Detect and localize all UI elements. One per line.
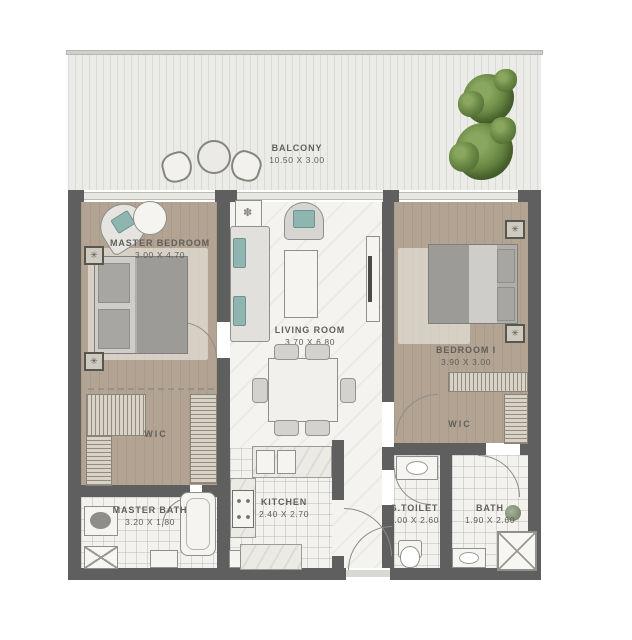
wic-bedroom1-label: WIC [448,418,472,430]
master-bath-label: MASTER BATH 3.20 X 1.80 [113,504,188,528]
guest-toilet-sink [406,461,428,475]
wall-hall-toilet-a [382,392,394,402]
bath-label: BATH 1.90 X 2.60 [465,502,515,526]
toilet-bowl [400,546,420,568]
guest-toilet-name: G.TOILET [390,503,439,513]
wall-wic-masterbath-a [81,485,190,497]
kitchen-sink [256,450,275,474]
guest-toilet-label: G.TOILET 1.00 X 2.60 [389,502,439,526]
master-bath-sink [90,512,111,529]
dining-chair [305,344,330,360]
sofa-pillow [233,238,246,268]
ac-unit-icon: ✳ [505,220,525,239]
bedroom1-bed [428,244,518,324]
wall-master-living-lower [217,358,230,568]
balcony-table [197,140,231,174]
wall-kitchen-right-b [332,556,344,568]
ac-unit-icon: ✳ [84,352,104,371]
master-bed [94,256,188,354]
bedroom1-name: BEDROOM I [436,345,496,355]
wic-master-name: WIC [144,429,168,439]
balcony-window [84,192,518,200]
wic-bedroom1-name: WIC [448,419,472,429]
living-armchair-cushion [293,210,315,228]
dining-chair [305,420,330,436]
flower-icon: ✽ [243,208,252,219]
bath-dims: 1.90 X 2.60 [465,514,515,526]
dining-chair [340,378,356,403]
wall-top-b [215,190,237,202]
master-bedroom-label: MASTER BEDROOM 3.00 X 4.70 [110,237,210,261]
wall-wic2-bottom-a [394,443,486,455]
kitchen-sink [277,450,296,474]
stove [232,490,254,528]
wall-bottom-left [68,568,346,580]
bath-sink [459,552,479,564]
shaft-x-icon [84,546,118,569]
ac-unit-icon: ✳ [84,246,104,265]
kitchen-counter-bottom [240,544,302,570]
coffee-table [284,250,318,318]
guest-toilet-dims: 1.00 X 2.60 [389,514,439,526]
shower-x-icon [497,531,537,571]
wall-top-c [383,190,399,202]
living-room-name: LIVING ROOM [275,325,345,335]
wall-hall-toilet-b [382,447,394,470]
balcony-dims: 10.50 X 3.00 [269,154,324,166]
dining-chair [252,378,268,403]
master-wic-wardrobe-right [190,394,217,484]
balcony-name: BALCONY [272,143,323,153]
bedroom1-wardrobe-right [504,394,528,444]
wall-kitchen-right-a [332,440,344,500]
kitchen-appliance [229,550,241,568]
wall-toilet-bath [440,455,452,568]
wall-living-bedroom1 [382,202,394,392]
kitchen-label: KITCHEN 2.40 X 2.70 [259,496,309,520]
floor-plan: BALCONY 10.50 X 3.00 [0,0,632,640]
kitchen-dims: 2.40 X 2.70 [259,508,309,520]
bedroom1-dims: 3.90 X 3.00 [436,356,496,368]
wall-wic2-bottom-b [520,443,528,455]
bedroom1-bed-blanket [429,245,469,323]
master-bedroom-dims: 3.00 X 4.70 [110,249,210,261]
dining-table [268,358,338,422]
kitchen-name: KITCHEN [261,497,307,507]
bedroom1-bed-pillow [497,249,515,283]
master-wic-wardrobe-left [86,436,112,486]
master-bed-pillow [98,309,130,349]
wall-master-living-upper [217,202,230,322]
bathtub-basin [186,498,210,550]
sofa-pillow [233,296,246,326]
bath-name: BATH [476,503,504,513]
master-wic-wardrobe-top [86,394,146,436]
balcony-label: BALCONY 10.50 X 3.00 [269,142,324,166]
master-bath-wc [150,550,178,568]
bedroom1-label: BEDROOM I 3.90 X 3.00 [436,344,496,368]
wall-right [528,190,541,580]
master-bed-pillow [98,263,130,303]
entrance-threshold [346,570,390,577]
master-bath-dims: 3.20 X 1.80 [113,516,188,528]
master-bedroom-name: MASTER BEDROOM [110,238,210,248]
wic-master-label: WIC [144,428,168,440]
wall-left [68,190,81,580]
bedroom1-wardrobe-top [448,372,528,392]
master-bed-blanket [137,257,187,353]
master-side-table [133,201,167,235]
bedroom1-bed-sheet [469,245,497,323]
master-wic-opening [88,388,214,390]
bedroom1-bed-pillow [497,287,515,321]
tv-icon [368,256,372,302]
dining-chair [274,420,299,436]
master-bath-name: MASTER BATH [113,505,188,515]
dining-chair [274,344,299,360]
ac-unit-icon: ✳ [505,324,525,343]
